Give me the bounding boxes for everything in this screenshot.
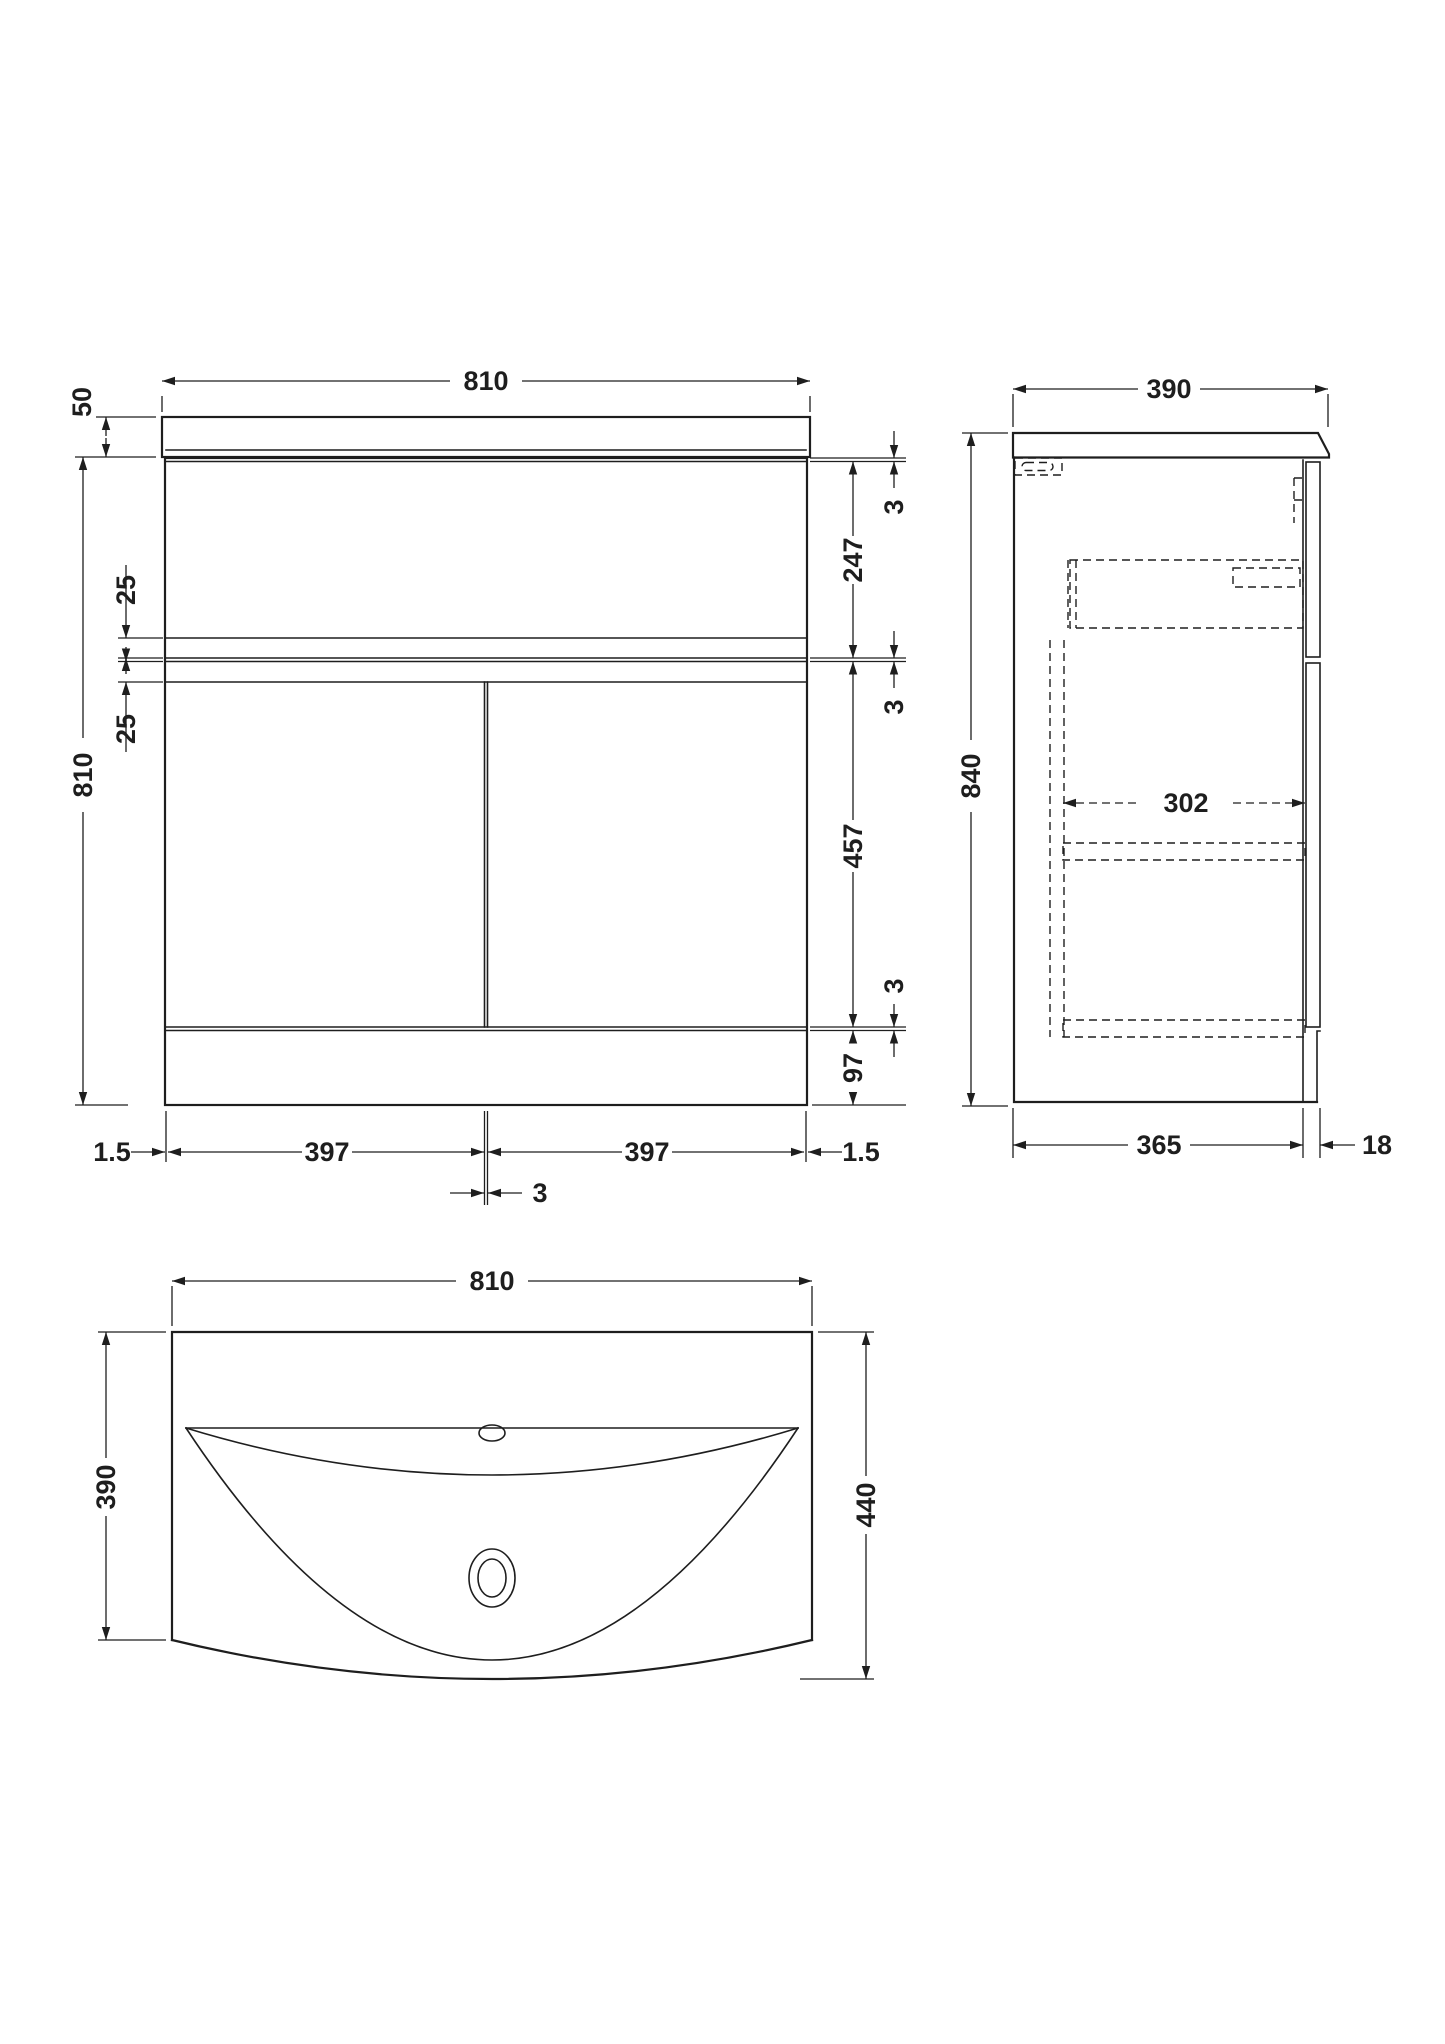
side-hidden-shelf: [1063, 843, 1305, 860]
front-dim-rails: 25 25: [111, 565, 163, 752]
dim-front-width: 810: [463, 366, 508, 396]
dim-front-gap-bottom: 3: [879, 978, 909, 993]
vanity-drawing-svg: 810 50 810 25 25: [0, 0, 1445, 2044]
side-body: [1014, 458, 1320, 1103]
side-hidden-door-inner: [1050, 640, 1064, 1037]
side-dim-bottom: 365 18: [1013, 1108, 1392, 1160]
side-dim-internal: 302: [1063, 788, 1305, 818]
plan-bowl-curve: [186, 1428, 798, 1660]
technical-drawing-page: 810 50 810 25 25: [0, 0, 1445, 2044]
dim-front-gap-top: 3: [879, 499, 909, 514]
dim-front-rail-lower: 25: [111, 714, 141, 744]
dim-front-door-gap: 3: [532, 1178, 547, 1208]
plan-view: 810 390 440: [91, 1266, 881, 1679]
front-elevation-view: 810 50 810 25 25: [67, 366, 909, 1208]
dim-side-front-thickness: 18: [1362, 1130, 1392, 1160]
plan-dim-depth-side: 390: [91, 1332, 166, 1640]
front-dim-height: 810: [68, 457, 128, 1105]
dim-front-doors-height: 457: [838, 823, 868, 868]
dim-front-height: 810: [68, 752, 98, 797]
dim-front-door-left: 397: [304, 1137, 349, 1167]
dim-side-height: 840: [956, 753, 986, 798]
dim-side-depth: 390: [1146, 374, 1191, 404]
dim-front-drawer: 247: [838, 537, 868, 582]
front-dim-bottom: 1.5 397 397 1.5 3: [93, 1111, 880, 1208]
dim-plan-depth-side: 390: [91, 1464, 121, 1509]
dim-front-rail-upper: 25: [111, 575, 141, 605]
plan-rim-deck-curve: [186, 1428, 798, 1475]
dim-side-internal: 302: [1163, 788, 1208, 818]
dim-front-gap-mid: 3: [879, 699, 909, 714]
side-hidden-bracket: [1015, 458, 1062, 475]
plan-dim-width: 810: [172, 1266, 812, 1326]
side-dim-depth: 390: [1013, 374, 1328, 427]
side-drawer-front-edge: [1306, 462, 1320, 657]
dim-plan-width: 810: [469, 1266, 514, 1296]
side-dim-height: 840: [956, 433, 1008, 1106]
side-elevation-view: 390 840 302 365 18: [956, 374, 1392, 1160]
front-cabinet: [165, 458, 807, 1105]
front-dim-basin-height: 50: [67, 387, 156, 457]
dim-front-door-right: 397: [624, 1137, 669, 1167]
dim-front-inset-right: 1.5: [842, 1137, 880, 1167]
dim-front-inset-left: 1.5: [93, 1137, 131, 1167]
plan-basin-outline: [172, 1332, 812, 1679]
plan-drain-inner: [478, 1559, 506, 1597]
dim-front-basin-height: 50: [67, 387, 97, 417]
front-dim-width: 810: [162, 366, 810, 412]
front-dim-chain-right: 247 457 97 3 3 3: [810, 431, 909, 1105]
side-hidden-drawer-box: [1070, 560, 1303, 628]
dim-side-carcass-depth: 365: [1136, 1130, 1181, 1160]
plan-drain-outer: [469, 1549, 515, 1607]
side-plinth-edge: [1317, 1031, 1320, 1102]
side-hidden-details: [1015, 458, 1307, 1037]
front-basin: [162, 417, 810, 457]
side-hidden-bottom: [1063, 1020, 1305, 1037]
side-door-front-edge: [1306, 663, 1320, 1027]
dim-plan-depth-total: 440: [851, 1482, 881, 1527]
side-basin-profile: [1013, 433, 1329, 458]
dim-front-plinth: 97: [838, 1053, 868, 1083]
